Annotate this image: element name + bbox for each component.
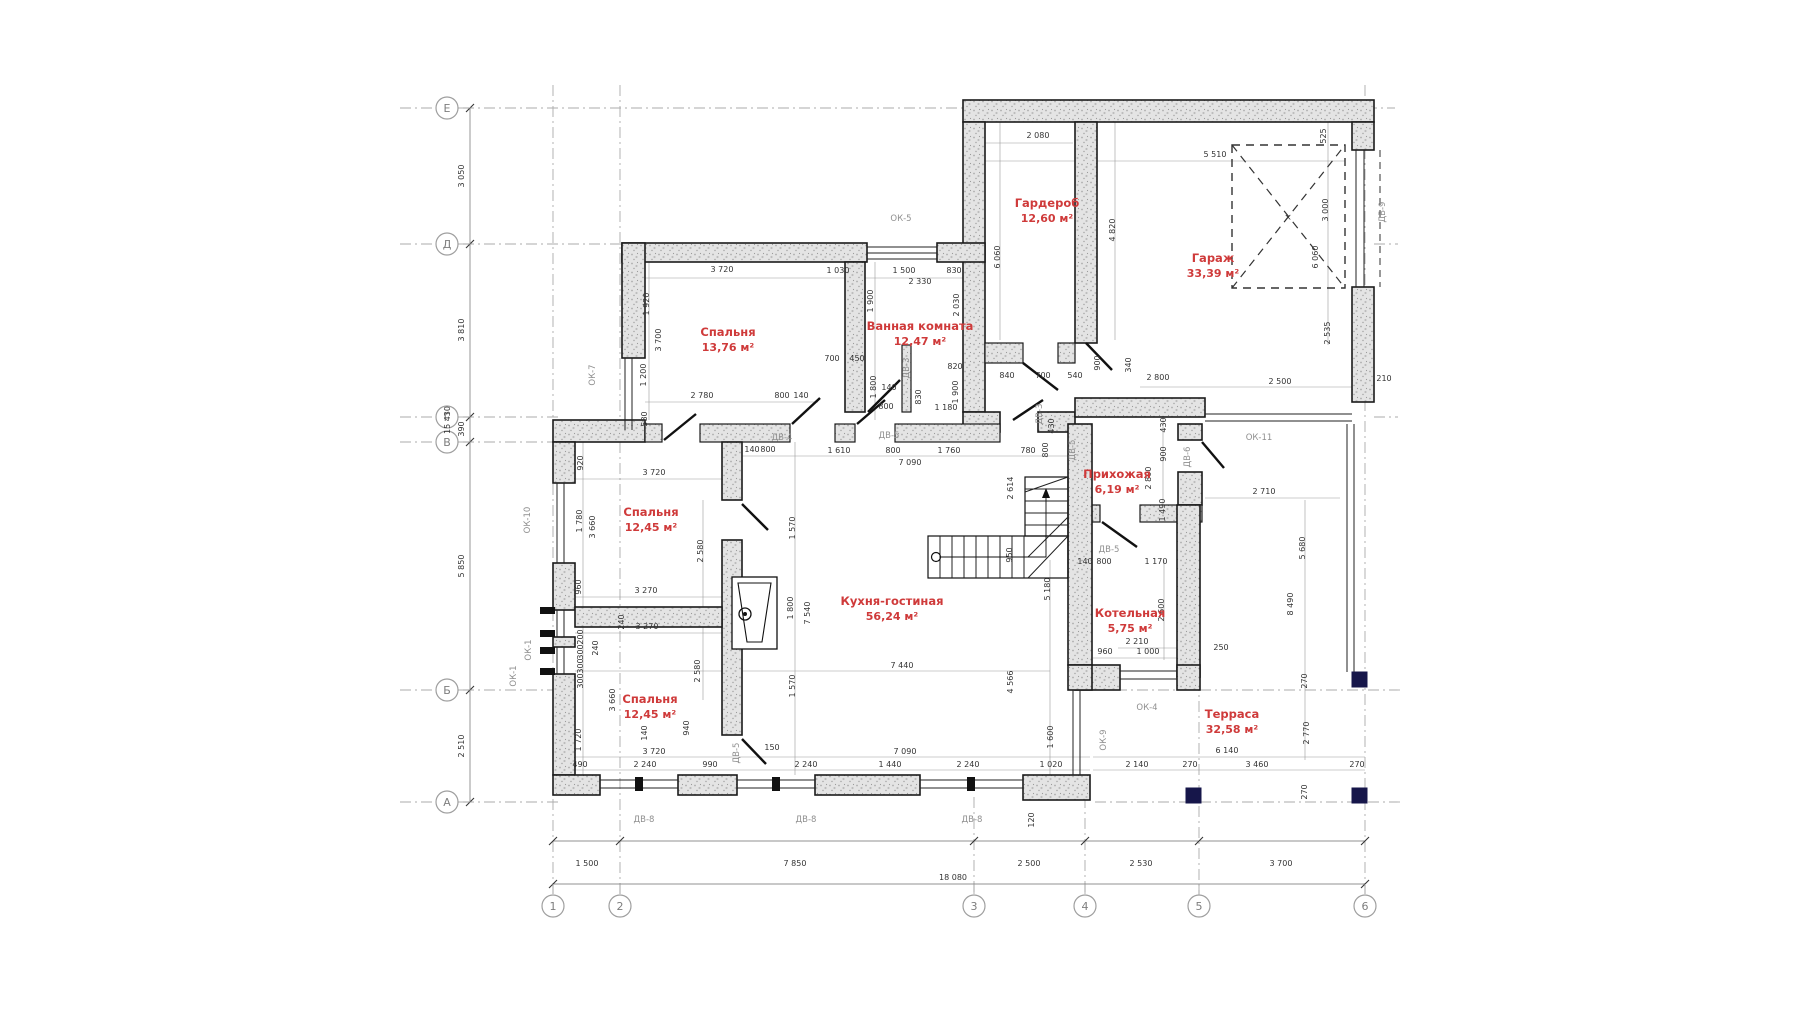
dimension-label: 800 [1096,557,1111,566]
dimension-label: 960 [1097,647,1112,656]
dimension-label: 1 780 [575,510,584,533]
dimension-label: 700 [1035,371,1050,380]
room-label: Спальня [623,505,678,519]
dimension-label: 1 020 [1040,760,1063,769]
dimension-label: 6 140 [1216,746,1239,755]
opening-label: ДВ-8 [634,815,655,825]
opening-label: ДВ-5 [879,431,900,441]
opening-label: ДВ-5 [1099,545,1120,555]
opening-label: ДВ-4 [772,433,793,443]
dimension-label: 3 050 [457,165,466,188]
dimension-label: 270 [1349,760,1364,769]
dimension-label: 3 720 [643,468,666,477]
dimension-label: 430 [1159,417,1168,432]
floor-plan-drawing: × ЕДГВБА123456 1 5007 8502 5002 5303 700… [0,0,1813,1020]
dimension-label: 200 [576,629,585,644]
dimension-label: 5 510 [1204,150,1227,159]
dimension-label: 1 610 [828,446,851,455]
dimension-lines-layer [470,108,1365,884]
dimension-label: 390 [457,421,466,436]
dimension-label: 2 240 [634,760,657,769]
opening-label: ОК-5 [890,214,911,224]
dimension-label: 820 [947,362,962,371]
room-area: 12,47 м² [894,335,947,348]
dimension-label: 1 030 [827,266,850,275]
dimension-label: 2 580 [696,540,705,563]
dimension-label: 1 200 [639,364,648,387]
dimension-label: 580 [640,411,649,426]
dimension-label: 5 850 [457,555,466,578]
dimension-label: 7 440 [891,661,914,670]
opening-label: ОК-1 [524,639,534,660]
opening-label: ДВ-6 [1183,447,1193,468]
dimension-label: 140 [640,725,649,740]
axis-row-label: Б [443,684,451,697]
opening-label: ОК-1 [509,665,519,686]
dimension-label: 3 700 [654,329,663,352]
dimension-label: 240 [591,640,600,655]
room-label: Спальня [700,325,755,339]
axis-row-label: Д [443,238,452,251]
dimension-label: 3 270 [636,622,659,631]
svg-text:×: × [1284,213,1292,223]
dimension-label: 4 820 [1108,219,1117,242]
dimension-label: 270 [1300,784,1309,799]
dimension-label: 800 [885,446,900,455]
floor-plan-canvas: × ЕДГВБА123456 1 5007 8502 5002 5303 700… [0,0,1813,1020]
axis-row-label: Е [444,102,451,115]
dimension-label: 990 [702,760,717,769]
dimension-label: 2 530 [1130,859,1153,868]
dimension-label: 5 180 [1043,578,1052,601]
dimension-label: 240 [617,614,626,629]
dimension-label: 830 [914,389,923,404]
dimension-ticks [466,104,1369,888]
dimension-label: 1 570 [788,517,797,540]
room-area: 13,76 м² [702,341,755,354]
room-label: Прихожая [1083,467,1151,481]
dimension-label: 300 [576,673,585,688]
dimension-label: 540 [1067,371,1082,380]
dimension-label: 800 [760,445,775,454]
dimension-label: 250 [1213,643,1228,652]
axis-col-label: 4 [1082,900,1089,913]
dimension-label: 2 240 [795,760,818,769]
dimension-label: 800 [1041,442,1050,457]
room-area: 12,45 м² [625,521,678,534]
opening-label: ДВ-3 [1035,404,1045,425]
dimension-label: 3 720 [711,265,734,274]
dimension-label: 2 210 [1126,637,1149,646]
room-label: Гараж [1192,251,1235,265]
dimension-label: 1 760 [938,446,961,455]
dimension-label: 1 170 [1145,557,1168,566]
dimension-label: 490 [572,760,587,769]
dimension-label: 1 500 [576,859,599,868]
dimension-label: 2 780 [691,391,714,400]
room-area: 5,75 м² [1108,622,1153,635]
dimension-label: 450 [849,354,864,363]
dimension-label: 2 500 [1269,377,1292,386]
dimension-label: 960 [574,579,583,594]
axis-col-label: 6 [1362,900,1369,913]
dimension-label: 1 920 [642,293,651,316]
dimension-label: 7 540 [803,602,812,625]
dimension-label: 2 580 [693,660,702,683]
fireplace [732,577,777,649]
opening-label: ДВ-8 [796,815,817,825]
dimension-label: 1 900 [951,381,960,404]
dimension-label: 4 566 [1006,671,1015,694]
dimension-label: 1 600 [1046,726,1055,749]
dimension-label: 18 080 [939,873,967,882]
dimension-label: 15 430 [443,406,452,434]
dimension-label: 150 [764,743,779,752]
room-area: 12,45 м² [624,708,677,721]
dimension-label: 525 [1319,128,1328,143]
opening-label: ДВ-5 [732,743,742,764]
dimension-label: 2 240 [957,760,980,769]
dimension-label: 3 000 [1321,199,1330,222]
dimension-label: 2 800 [1147,373,1170,382]
dimension-label: 2 030 [952,294,961,317]
axis-row-label: А [443,796,451,809]
dimension-label: 5 680 [1298,537,1307,560]
dimension-label: 2 770 [1302,722,1311,745]
dimension-label: 2 330 [909,277,932,286]
dimension-label: 2 710 [1253,487,1276,496]
dimension-label: 340 [1124,357,1133,372]
opening-label: ДВ-5 [1068,440,1078,461]
opening-label: ДВ-8 [962,815,983,825]
dimension-label: 8 490 [1286,593,1295,616]
dimension-label: 900 [1159,446,1168,461]
dimension-label: 1 440 [879,760,902,769]
dimension-label: 120 [1027,812,1036,827]
dimension-label: 3 810 [457,319,466,342]
dimension-label: 840 [999,371,1014,380]
opening-label: ОК-11 [1246,433,1273,443]
opening-label: ОК-10 [523,507,533,534]
opening-label: ОК-7 [588,364,598,385]
room-area: 32,58 м² [1206,723,1259,736]
dimension-label: 140 [793,391,808,400]
room-area: 12,60 м² [1021,212,1074,225]
dimension-label: 920 [576,455,585,470]
axis-col-label: 2 [617,900,624,913]
dim-labels-layer: 1 5007 8502 5002 5303 70018 0803 7201507… [443,128,1392,882]
dimension-label: 1 500 [893,266,916,275]
room-label: Ванная комната [867,319,974,333]
dimension-label: 900 [1093,355,1102,370]
dimension-label: 140 [1077,557,1092,566]
dimension-label: 700 [824,354,839,363]
axis-col-label: 5 [1196,900,1203,913]
dimension-label: 7 850 [784,859,807,868]
opening-label: ОК-4 [1136,703,1157,713]
dimension-label: 800 [878,402,893,411]
dimension-label: 300 [576,658,585,673]
room-label: Кухня-гостиная [841,594,944,608]
dimension-label: 300 [576,644,585,659]
dimension-label: 270 [1182,760,1197,769]
room-label: Терраса [1205,707,1259,721]
axis-col-label: 3 [971,900,978,913]
dimension-label: 2 140 [1126,760,1149,769]
room-label: Гардероб [1015,196,1080,210]
dimension-label: 7 090 [899,458,922,467]
dimension-label: 6 060 [993,246,1002,269]
dimension-label: 1 000 [1137,647,1160,656]
staircase [928,477,1068,578]
axis-col-label: 1 [550,900,557,913]
axis-row-label: В [443,436,451,449]
dimension-label: 1 720 [574,729,583,752]
room-area: 56,24 м² [866,610,919,623]
dimension-label: 940 [682,720,691,735]
dimension-label: 2 614 [1006,477,1015,500]
room-label: Котельная [1095,606,1166,620]
dimension-label: 2 510 [457,735,466,758]
dimension-label: 1 180 [935,403,958,412]
room-area: 33,39 м² [1187,267,1240,280]
opening-label: ДВ-9 [1378,202,1388,223]
dimension-label: 3 460 [1246,760,1269,769]
dimension-label: 210 [1376,374,1391,383]
dimension-label: 1 800 [869,376,878,399]
dimension-label: 6 060 [1311,246,1320,269]
opening-label: ДВ-3 [902,358,912,379]
dimension-label: 3 700 [1270,859,1293,868]
dimension-label: 1 570 [788,675,797,698]
dimension-label: 3 270 [635,586,658,595]
dimension-label: 2 080 [1027,131,1050,140]
opening-label: ОК-9 [1099,729,1109,750]
dimension-label: 800 [774,391,789,400]
dimension-label: 3 660 [588,516,597,539]
dimension-label: 3 720 [643,747,666,756]
dimension-label: 1 900 [866,290,875,313]
dimension-label: 270 [1300,673,1309,688]
dimension-label: 780 [1020,446,1035,455]
room-area: 6,19 м² [1095,483,1140,496]
dimension-label: 7 090 [894,747,917,756]
terrace-columns [1186,672,1367,803]
dimension-label: 950 [1005,547,1014,562]
dimension-label: 3 660 [608,689,617,712]
dimension-label: 830 [946,266,961,275]
dimension-label: 2 535 [1323,322,1332,345]
dimension-label: 140 [881,383,896,392]
dimension-label: 1 490 [1158,499,1167,522]
dimension-label: 1 800 [786,597,795,620]
room-label: Спальня [622,692,677,706]
dimension-label: 140 [744,445,759,454]
dimension-label: 430 [1047,418,1056,433]
dimension-label: 2 500 [1018,859,1041,868]
